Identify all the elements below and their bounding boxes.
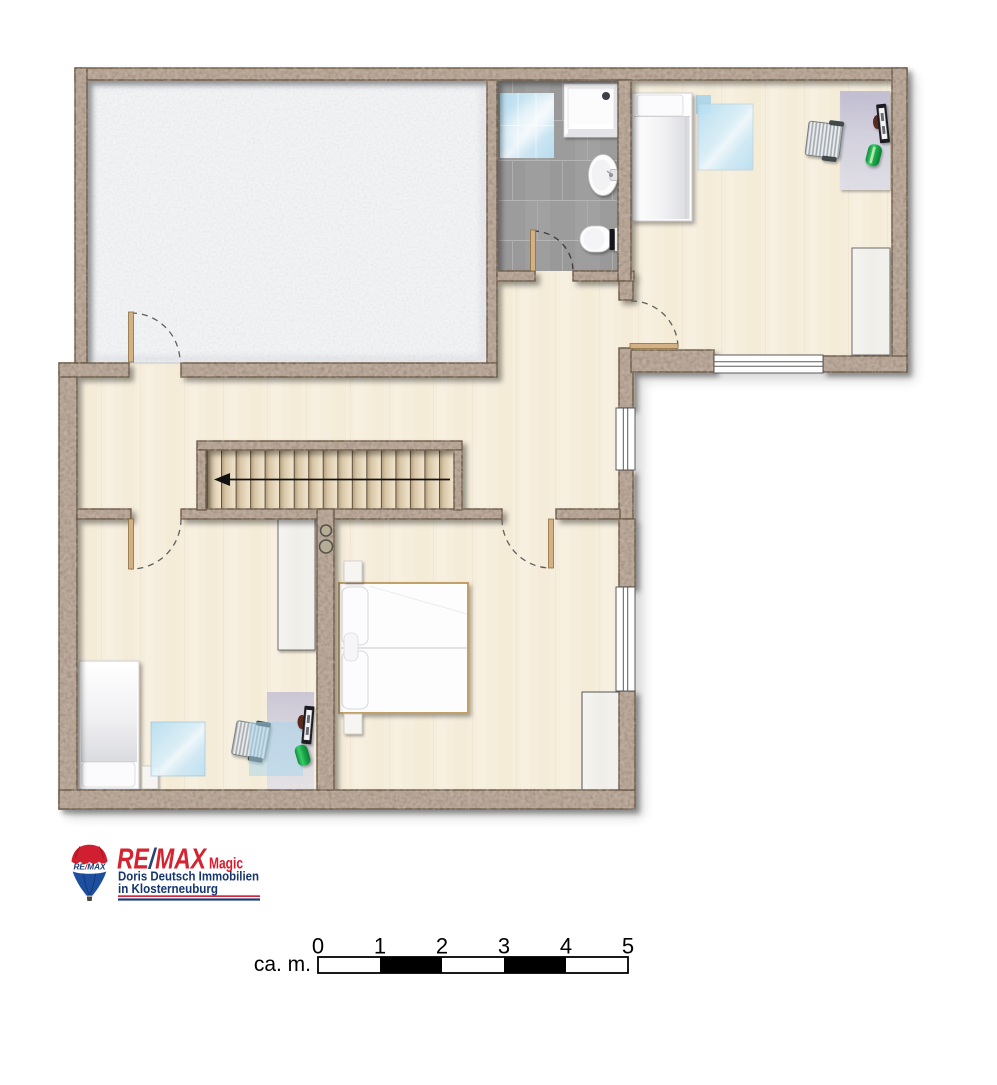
svg-text:3: 3 (498, 934, 510, 959)
svg-text:RE/MAX: RE/MAX (74, 862, 107, 872)
svg-text:0: 0 (312, 934, 324, 959)
svg-text:5: 5 (622, 934, 634, 959)
svg-text:2: 2 (436, 934, 448, 959)
svg-text:in Klosterneuburg: in Klosterneuburg (118, 882, 218, 896)
svg-text:ca. m.: ca. m. (254, 953, 311, 976)
svg-text:1: 1 (374, 934, 386, 959)
svg-text:4: 4 (560, 934, 572, 959)
